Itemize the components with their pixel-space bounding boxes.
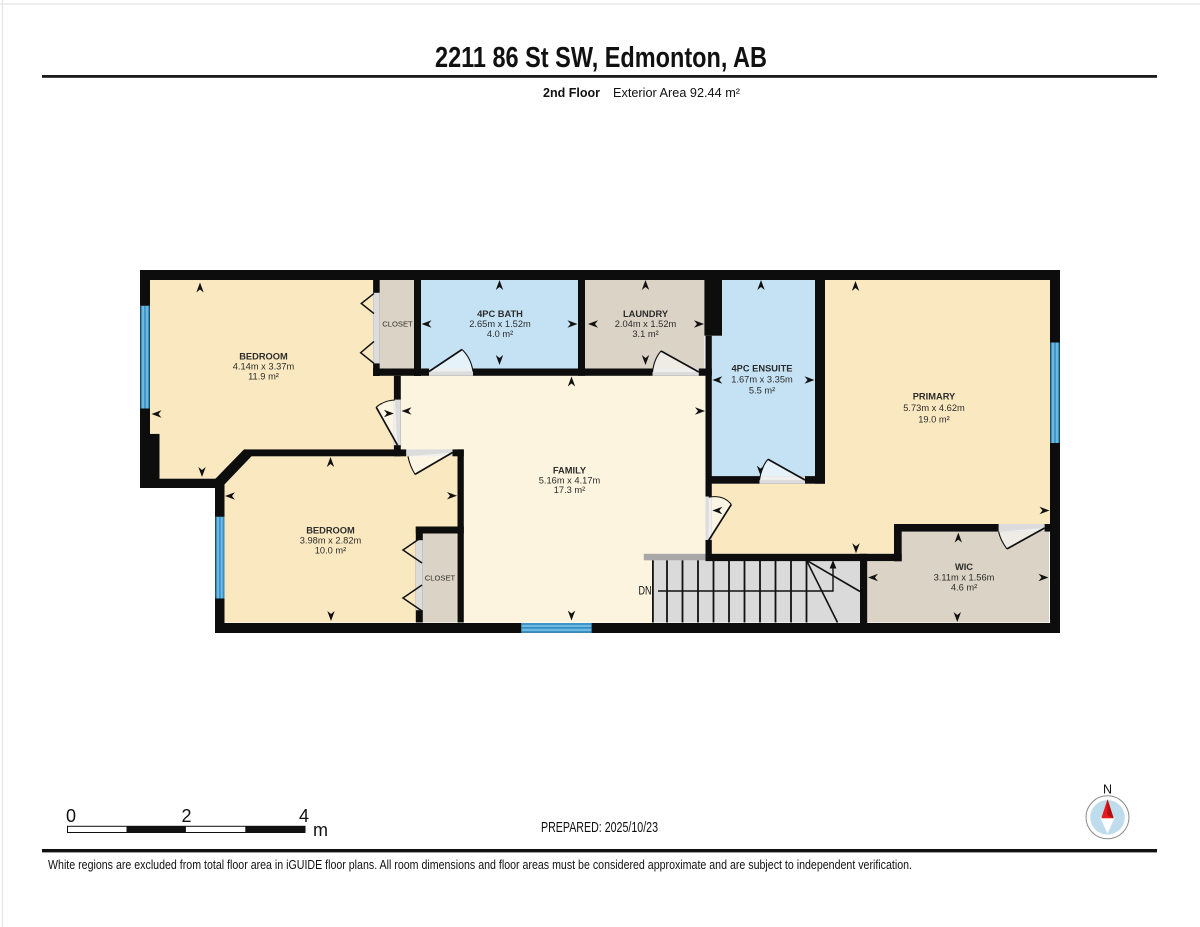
svg-text:N: N xyxy=(1103,783,1112,797)
svg-text:4PC ENSUITE: 4PC ENSUITE xyxy=(732,363,793,373)
svg-text:FAMILY: FAMILY xyxy=(553,465,587,475)
svg-text:CLOSET: CLOSET xyxy=(425,574,456,583)
svg-text:17.3 m²: 17.3 m² xyxy=(554,485,586,495)
svg-text:4.14m x 3.37m: 4.14m x 3.37m xyxy=(233,362,295,372)
svg-text:0: 0 xyxy=(66,806,76,826)
svg-text:5.5 m²: 5.5 m² xyxy=(749,385,775,395)
svg-text:2211 86 St SW, Edmonton, AB: 2211 86 St SW, Edmonton, AB xyxy=(435,42,767,74)
svg-text:1.67m x 3.35m: 1.67m x 3.35m xyxy=(731,374,793,384)
svg-text:2.65m x 1.52m: 2.65m x 1.52m xyxy=(469,319,531,329)
svg-text:PREPARED: 2025/10/23: PREPARED: 2025/10/23 xyxy=(541,819,658,836)
svg-text:BEDROOM: BEDROOM xyxy=(239,351,288,361)
svg-text:3.1 m²: 3.1 m² xyxy=(632,329,658,339)
svg-text:2nd Floor: 2nd Floor xyxy=(543,85,600,100)
svg-text:2.04m x 1.52m: 2.04m x 1.52m xyxy=(615,319,677,329)
svg-text:Exterior Area 92.44 m²: Exterior Area 92.44 m² xyxy=(613,85,741,100)
svg-text:m: m xyxy=(313,820,328,840)
svg-text:11.9 m²: 11.9 m² xyxy=(248,372,279,382)
svg-text:CLOSET: CLOSET xyxy=(382,320,413,329)
svg-text:WIC: WIC xyxy=(955,562,973,572)
svg-text:White regions are excluded fro: White regions are excluded from total fl… xyxy=(48,857,912,872)
svg-text:BEDROOM: BEDROOM xyxy=(306,525,355,535)
svg-text:4PC BATH: 4PC BATH xyxy=(477,309,523,319)
svg-text:LAUNDRY: LAUNDRY xyxy=(623,309,669,319)
svg-text:4.6 m²: 4.6 m² xyxy=(951,582,977,592)
svg-text:DN: DN xyxy=(639,586,652,598)
svg-text:PRIMARY: PRIMARY xyxy=(913,391,956,401)
svg-text:4.0 m²: 4.0 m² xyxy=(487,329,513,339)
svg-text:19.0 m²: 19.0 m² xyxy=(918,414,950,424)
svg-text:4: 4 xyxy=(299,806,309,826)
svg-text:3.11m x 1.56m: 3.11m x 1.56m xyxy=(934,572,995,582)
svg-text:5.16m x 4.17m: 5.16m x 4.17m xyxy=(539,475,601,485)
svg-text:2: 2 xyxy=(181,806,191,826)
svg-text:5.73m x 4.62m: 5.73m x 4.62m xyxy=(903,403,965,413)
svg-text:3.98m x 2.82m: 3.98m x 2.82m xyxy=(300,536,362,546)
svg-text:10.0 m²: 10.0 m² xyxy=(315,546,347,556)
